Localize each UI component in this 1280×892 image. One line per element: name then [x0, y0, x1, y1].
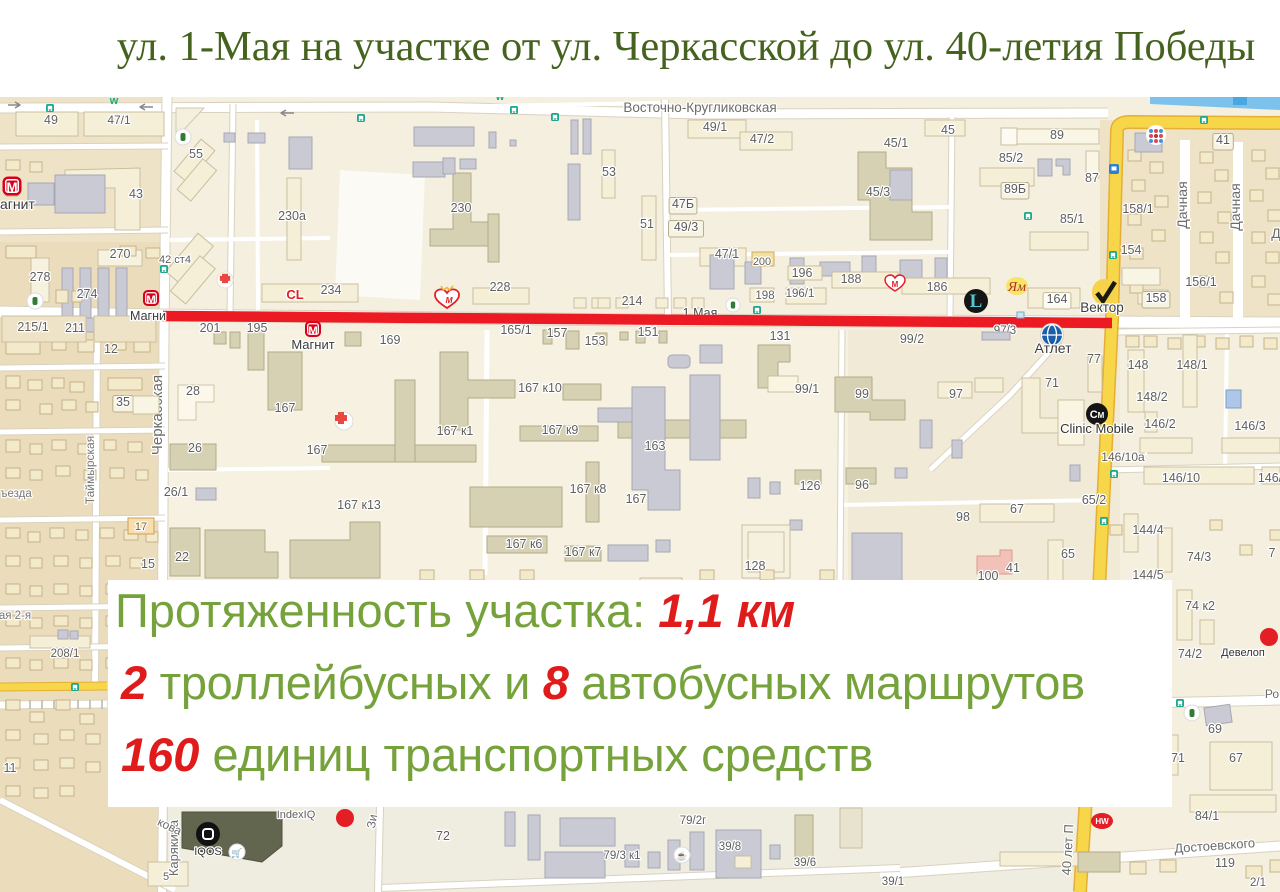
svg-text:167 к8: 167 к8 [570, 482, 607, 496]
svg-text:72: 72 [436, 829, 450, 843]
svg-text:39/8: 39/8 [719, 841, 741, 853]
svg-text:7: 7 [1269, 546, 1276, 560]
svg-text:45/3: 45/3 [866, 185, 890, 199]
svg-text:42 ст4: 42 ст4 [159, 254, 191, 266]
svg-text:12: 12 [104, 342, 118, 356]
svg-text:167 к6: 167 к6 [506, 537, 543, 551]
svg-text:119: 119 [1215, 856, 1235, 870]
svg-text:215/1: 215/1 [17, 320, 48, 334]
svg-text:154: 154 [1121, 243, 1142, 257]
svg-text:144/4: 144/4 [1132, 523, 1163, 537]
svg-text:67: 67 [1229, 751, 1243, 765]
svg-text:41: 41 [1216, 133, 1230, 147]
svg-text:148/1: 148/1 [1176, 358, 1207, 372]
svg-text:167: 167 [275, 401, 296, 415]
svg-text:74/2: 74/2 [1178, 647, 1202, 661]
svg-text:Вектор: Вектор [1080, 300, 1124, 315]
svg-text:HW: HW [1095, 817, 1109, 826]
svg-text:128: 128 [745, 559, 766, 573]
svg-text:47/1: 47/1 [715, 247, 739, 261]
svg-text:201: 201 [200, 321, 221, 335]
svg-text:IndexIQ: IndexIQ [277, 809, 316, 821]
svg-text:99/1: 99/1 [795, 382, 819, 396]
svg-text:Ро: Ро [1265, 687, 1279, 701]
svg-text:87: 87 [1085, 171, 1099, 185]
svg-text:М: М [445, 295, 453, 305]
svg-text:47Б: 47Б [672, 197, 694, 211]
svg-text:188: 188 [841, 272, 862, 286]
svg-text:211: 211 [65, 321, 85, 335]
svg-text:15: 15 [141, 557, 155, 571]
svg-text:167 к7: 167 к7 [565, 545, 602, 559]
svg-text:167: 167 [307, 443, 328, 457]
svg-text:67: 67 [1010, 502, 1024, 516]
svg-text:2/1: 2/1 [1250, 877, 1266, 889]
svg-text:164: 164 [1047, 292, 1068, 306]
svg-text:Дачная: Дачная [1174, 181, 1190, 228]
svg-text:55: 55 [189, 147, 203, 161]
svg-text:🛒: 🛒 [231, 847, 242, 858]
svg-text:230: 230 [451, 201, 472, 215]
svg-text:167 к9: 167 к9 [542, 423, 579, 437]
svg-text:79/2г: 79/2г [680, 815, 707, 827]
svg-text:153: 153 [585, 334, 606, 348]
svg-text:М: М [308, 325, 317, 337]
svg-text:167 к10: 167 к10 [518, 381, 562, 395]
svg-text:Зи: Зи [364, 813, 380, 829]
svg-text:198: 198 [755, 290, 774, 302]
svg-text:39/1: 39/1 [882, 876, 904, 888]
svg-text:97: 97 [949, 387, 963, 401]
svg-text:45/1: 45/1 [884, 136, 908, 150]
svg-text:85/2: 85/2 [999, 151, 1023, 165]
svg-text:169: 169 [380, 333, 401, 347]
svg-text:☕: ☕ [676, 850, 687, 861]
svg-text:196/1: 196/1 [786, 288, 815, 300]
svg-text:М: М [146, 294, 155, 306]
svg-text:230а: 230а [278, 209, 306, 223]
svg-text:69: 69 [1208, 722, 1222, 736]
svg-text:186: 186 [927, 280, 948, 294]
svg-text:47/1: 47/1 [107, 113, 131, 127]
svg-text:146/: 146/ [1258, 471, 1280, 485]
svg-text:26: 26 [188, 441, 202, 455]
svg-text:65: 65 [1061, 547, 1075, 561]
svg-text:79/3 к1: 79/3 к1 [603, 850, 640, 862]
svg-text:99: 99 [855, 387, 869, 401]
svg-text:47/2: 47/2 [750, 132, 774, 146]
svg-text:45: 45 [941, 123, 955, 137]
svg-text:Ям: Ям [1007, 280, 1026, 295]
svg-text:22: 22 [175, 550, 189, 564]
svg-text:Черкасская: Черкасская [149, 375, 166, 455]
svg-text:84/1: 84/1 [1195, 809, 1219, 823]
svg-text:167: 167 [626, 492, 647, 506]
svg-text:41: 41 [1006, 561, 1020, 575]
svg-text:156/1: 156/1 [1185, 275, 1216, 289]
svg-text:151: 151 [638, 325, 659, 339]
svg-text:278: 278 [30, 270, 51, 284]
svg-text:74 к2: 74 к2 [1185, 599, 1215, 613]
svg-text:51: 51 [640, 217, 654, 231]
svg-text:CL: CL [286, 287, 303, 302]
svg-text:167 к1: 167 к1 [437, 424, 474, 438]
svg-text:74/3: 74/3 [1187, 550, 1211, 564]
svg-text:131: 131 [770, 329, 791, 343]
svg-text:167 к13: 167 к13 [337, 498, 381, 512]
svg-text:Девелоп: Девелоп [1221, 647, 1265, 659]
svg-text:148/2: 148/2 [1136, 390, 1167, 404]
svg-text:11: 11 [4, 761, 17, 775]
svg-text:Дачная: Дачная [1227, 183, 1243, 230]
svg-text:агнит: агнит [0, 196, 35, 212]
svg-text:270: 270 [110, 247, 131, 261]
svg-text:ая 2-я: ая 2-я [0, 610, 31, 622]
svg-text:17: 17 [135, 521, 147, 533]
svg-text:М: М [892, 280, 899, 289]
svg-text:Восточно-Кругликовская: Восточно-Кругликовская [623, 100, 776, 115]
svg-text:214: 214 [622, 294, 643, 308]
svg-text:195: 195 [247, 321, 268, 335]
svg-text:196: 196 [792, 266, 813, 280]
svg-text:43: 43 [129, 187, 143, 201]
svg-text:Clinic Mobile: Clinic Mobile [1060, 421, 1134, 436]
svg-text:53: 53 [602, 165, 616, 179]
svg-text:208/1: 208/1 [51, 648, 80, 660]
svg-text:Д: Д [1271, 225, 1280, 241]
svg-text:146/10а: 146/10а [1101, 450, 1145, 464]
svg-text:85/1: 85/1 [1060, 212, 1084, 226]
svg-text:200: 200 [753, 256, 771, 268]
svg-text:Таймырская: Таймырская [83, 436, 97, 504]
svg-text:146/10: 146/10 [1162, 471, 1200, 485]
svg-text:39/6: 39/6 [794, 857, 816, 869]
svg-text:w: w [495, 97, 505, 103]
svg-text:40 лет П: 40 лет П [1059, 824, 1077, 876]
svg-text:165/1: 165/1 [500, 323, 531, 337]
svg-text:Магнит: Магнит [291, 337, 334, 352]
svg-text:49: 49 [44, 113, 58, 127]
svg-text:71: 71 [1171, 751, 1185, 765]
svg-text:99/2: 99/2 [900, 332, 924, 346]
svg-text:L: L [970, 291, 983, 312]
svg-text:228: 228 [490, 280, 511, 294]
svg-text:274: 274 [77, 287, 98, 301]
svg-text:IQOS: IQOS [194, 846, 222, 858]
svg-text:163: 163 [645, 439, 666, 453]
svg-text:49/3: 49/3 [674, 220, 698, 234]
svg-text:234: 234 [321, 283, 342, 297]
svg-text:28: 28 [186, 384, 200, 398]
svg-text:96: 96 [855, 478, 869, 492]
svg-text:49/1: 49/1 [703, 120, 727, 134]
svg-text:157: 157 [547, 326, 568, 340]
svg-text:5: 5 [163, 871, 169, 883]
svg-text:26/1: 26/1 [164, 485, 188, 499]
svg-text:35: 35 [116, 395, 130, 409]
svg-text:158/1: 158/1 [1122, 202, 1153, 216]
svg-text:77: 77 [1087, 352, 1101, 366]
svg-text:89Б: 89Б [1004, 182, 1026, 196]
svg-text:CM: CM [1090, 409, 1105, 421]
svg-text:158: 158 [1146, 291, 1167, 305]
svg-text:Магни: Магни [130, 309, 166, 323]
svg-text:w: w [109, 97, 119, 107]
svg-text:126: 126 [800, 479, 821, 493]
svg-text:ъезда: ъезда [0, 488, 32, 500]
svg-text:146/2: 146/2 [1144, 417, 1175, 431]
svg-text:148: 148 [1128, 358, 1149, 372]
svg-text:65/2: 65/2 [1082, 493, 1106, 507]
svg-text:98: 98 [956, 510, 970, 524]
svg-text:89: 89 [1050, 128, 1064, 142]
svg-text:М: М [6, 180, 17, 195]
svg-text:146/3: 146/3 [1234, 419, 1265, 433]
svg-text:71: 71 [1045, 376, 1059, 390]
svg-text:Атлет: Атлет [1034, 340, 1072, 356]
